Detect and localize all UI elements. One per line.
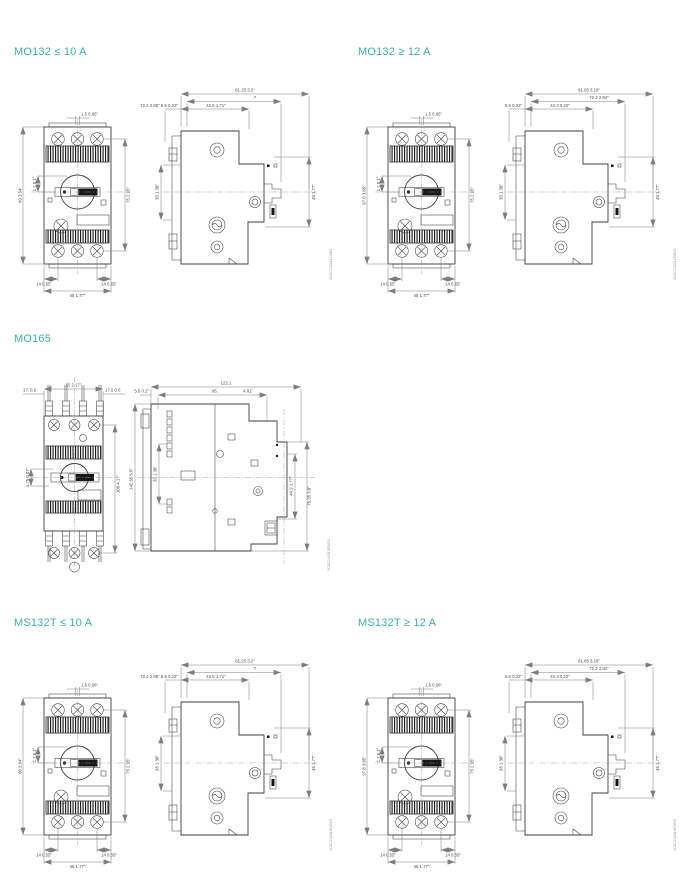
dim-height-right: 75 2.95" (470, 187, 475, 203)
dim-depth-row2-right: 4.81" (243, 389, 253, 394)
type-label-plate (421, 786, 453, 796)
dim-width: 45 1.77" (414, 293, 430, 298)
dim-depth-row2: 72.2 2.84" (589, 95, 609, 100)
dim-knob-offset: 1.7 0.1" (32, 176, 37, 191)
type-label-plate (421, 215, 453, 225)
dim-width-center: 55 2.17" (66, 383, 82, 388)
section-mo165: MO165 (14, 333, 346, 609)
dim-top-right: 17.5 0.6 (105, 388, 121, 393)
side-details (553, 714, 625, 824)
dim-knob-offset: 1.7 0.1" (376, 747, 381, 762)
dimension-drawing: 1.5 0.06" 90 3.54" 1.7 0.1" 75 2.95" 14 … (14, 643, 346, 883)
dim-side-height-right: 45 1.77" (311, 755, 316, 771)
side-view (507, 702, 661, 835)
terminal-screws-top (49, 420, 100, 431)
dim-height-right: 75 2.95" (126, 758, 131, 774)
section-ms132t-le10: MS132T ≤ 10 A (14, 617, 346, 883)
dim-knob-top: 1.5 0.06" (425, 683, 443, 688)
dim-foot-right: 14 0.55" (101, 853, 117, 858)
section-title: MO165 (14, 333, 346, 347)
front-dimensions: 1.5 0.06" 90 3.54" 1.7 0.1" 75 2.95" 14 … (18, 112, 131, 299)
dim-knob-top: 1.5 0.06" (81, 112, 99, 117)
dim-side-height-left: 35 1.38" (499, 755, 504, 771)
test-window (101, 771, 106, 776)
dim-depth-row2: 72.2 2.84" (589, 666, 609, 671)
aux-window (392, 198, 396, 202)
dim-side-height-right-outer: 76.35 3.0" (307, 486, 312, 506)
dim-depth-row1: 81.25 3.2" (235, 88, 255, 93)
dim-side-height-right-inner: 44.9 1.77" (289, 476, 294, 496)
section-mo132-ge12: MO132 ≥ 12 A (358, 46, 685, 312)
dim-clip-top: 5.5 0.2" (134, 389, 149, 394)
dim-depth-row3-right: 43.5 1.71" (206, 103, 226, 108)
dim-depth-row3-left: 5.5 0.22" (505, 674, 523, 679)
front-dimensions: 1.5 0.06" 97.8 3.85" 1.7 0.1" 75 2.95" 1… (362, 683, 475, 870)
dim-side-height-left-inner: 35 1.38" (153, 466, 158, 482)
dim-side-height-right: 45 1.77" (311, 184, 316, 200)
dim-side-height-right: 45 1.77" (655, 755, 660, 771)
dim-foot-right: 14 0.55" (101, 282, 117, 287)
section-title: MO132 ≤ 10 A (14, 46, 346, 60)
dim-foot-right: 14 0.55" (445, 282, 461, 287)
side-details (167, 411, 278, 535)
dim-height-right: 106 4.17" (116, 474, 121, 493)
dim-height-left: 97.8 3.85" (362, 756, 367, 776)
dim-foot-right: 14 0.55" (445, 853, 461, 858)
dim-height-left: 90 3.54" (18, 758, 23, 774)
doc-number: 2CDC242011F0011 (329, 249, 333, 280)
dim-height-right: 75 2.95" (470, 758, 475, 774)
side-view (507, 131, 661, 264)
front-dimensions: 1.5 0.06" 90 3.54" 1.7 0.1" 75 2.95" 14 … (18, 683, 131, 870)
type-label-plate (77, 215, 109, 225)
dim-depth-row1: 81.05 3.19" (578, 659, 600, 664)
side-dimensions: 122.1 95. 4.81" 5.5 0.2" 142.65 5.6" 35 … (129, 381, 332, 572)
dim-top-left: 17. 0.6 (23, 388, 37, 393)
dim-depth-row3-left: 72.4 2.85" 5.5 0.22" (140, 674, 178, 679)
vent-band-bottom (46, 501, 101, 513)
section-title: MS132T ≤ 10 A (14, 617, 346, 631)
dim-knob-top: 1.5 0.06" (81, 683, 99, 688)
dim-side-height-left: 35 1.38" (499, 184, 504, 200)
side-details (209, 143, 281, 253)
front-dimensions: 55 2.17" 17. 0.6 17.5 0.6 1.75 0.07" 106… (23, 383, 125, 554)
dim-depth-row1: 122.1 (221, 381, 232, 386)
terminal-screws-bottom (49, 548, 100, 559)
dim-width: 45 1.77" (414, 864, 430, 869)
test-window (101, 200, 106, 205)
dim-height-right: 75 2.95" (126, 187, 131, 203)
dim-knob-offset: 1.75 0.07" (25, 467, 30, 487)
section-mo132-le10: MO132 ≤ 10 A (14, 46, 346, 312)
side-view (163, 702, 317, 835)
dimension-drawing: 1.5 0.06" 97.8 3.85" 1.7 0.1" 75 2.95" 1… (358, 643, 685, 883)
dim-knob-offset: 1.7 0.1" (376, 176, 381, 191)
dim-height-left: 90 3.54" (18, 187, 23, 203)
dimension-drawing: 1.5 0.06" 90 3.54" 1.7 0.1" 75 2.95" 14 … (14, 72, 346, 312)
side-details (553, 143, 625, 253)
dim-depth-row3-right: 43.3 0.22" (550, 103, 570, 108)
dimension-drawing: 1.5 0.06" 97.8 3.85" 1.7 0.1" 75 2.95" 1… (358, 72, 685, 312)
dim-depth-row1: 81.25 3.2" (235, 659, 255, 664)
dim-knob-offset: 1.7 0.1" (32, 747, 37, 762)
dim-depth-row3-right: 43.5 1.71" (206, 674, 226, 679)
dim-depth-row1: 81.05 3.19" (578, 88, 600, 93)
dim-side-height-left: 35 1.38" (155, 184, 160, 200)
front-view (31, 377, 115, 573)
aux-window (48, 198, 52, 202)
section-title: MO132 ≥ 12 A (358, 46, 685, 60)
dim-height-left: 97.8 3.85" (362, 185, 367, 205)
dim-depth-row2: 7 (254, 95, 257, 100)
front-dimensions: 1.5 0.06" 97.8 3.85" 1.7 0.1" 75 2.95" 1… (362, 112, 475, 299)
dim-side-height-left-outer: 142.65 5.6" (129, 468, 134, 490)
side-dimensions: 81.25 3.2" 7 72.4 2.85" 5.5 0.22" 43.5 1… (140, 659, 333, 852)
dim-width: 45 1.77" (70, 864, 86, 869)
dim-depth-row3-right: 43.3 0.22" (550, 674, 570, 679)
side-details (209, 714, 281, 824)
doc-number: 2CDC242010F0014 (327, 539, 331, 571)
aux-window (392, 769, 396, 773)
section-title: MS132T ≥ 12 A (358, 617, 685, 631)
dim-width: 45 1.77" (70, 293, 86, 298)
dim-depth-row3-left: 5.5 0.22" (505, 103, 523, 108)
doc-number: 2CDC242016F0019 (673, 819, 677, 851)
doc-number: 2CDC242012F0011 (673, 248, 677, 280)
dim-side-height-left: 35 1.38" (155, 755, 160, 771)
test-window (445, 200, 450, 205)
doc-number: 2CDC242011F0019 (329, 819, 333, 851)
dim-depth-row3-left: 72.4 2.85" 5.5 0.22" (140, 103, 178, 108)
dim-side-height-right: 45 1.77" (655, 184, 660, 200)
dimension-drawing: 55 2.17" 17. 0.6 17.5 0.6 1.75 0.07" 106… (14, 359, 346, 609)
side-view (163, 131, 317, 264)
side-dimensions: 81.25 3.2" 7 72.4 2.85" 5.5 0.22" 43.5 1… (140, 88, 333, 281)
type-label-plate (77, 786, 109, 796)
vent-band-top (46, 446, 101, 459)
type-label-plate (78, 490, 101, 500)
test-window (445, 771, 450, 776)
aux-window (48, 769, 52, 773)
section-ms132t-ge12: MS132T ≥ 12 A (358, 617, 685, 883)
dim-knob-top: 1.5 0.06" (425, 112, 443, 117)
dim-depth-row2-left: 95. (212, 389, 218, 394)
dim-depth-row2: 7 (254, 666, 257, 671)
